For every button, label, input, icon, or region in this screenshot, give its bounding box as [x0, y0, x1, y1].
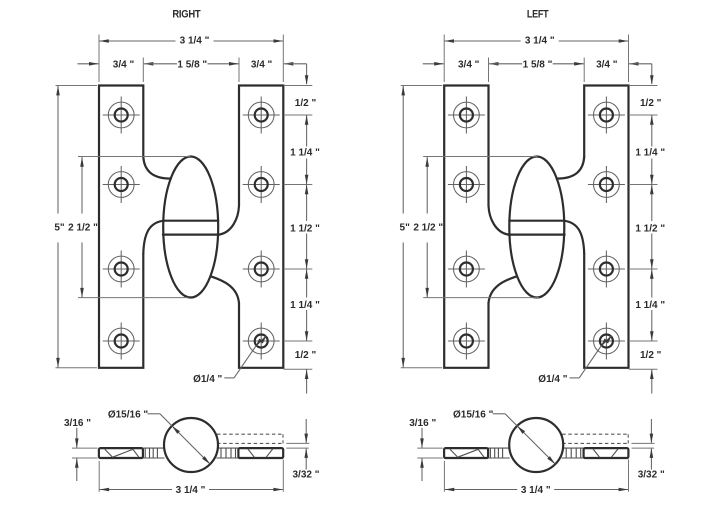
svg-text:3/32 ": 3/32 " [638, 469, 665, 480]
svg-text:1/2 ": 1/2 " [640, 350, 662, 361]
svg-text:1/2 ": 1/2 " [295, 350, 317, 361]
svg-text:1 5/8 ": 1 5/8 " [523, 60, 553, 71]
svg-text:3/4 ": 3/4 " [458, 60, 480, 71]
svg-text:3 1/4 ": 3 1/4 " [180, 36, 210, 47]
svg-text:1 1/4 ": 1 1/4 " [635, 148, 665, 159]
svg-text:1 1/2 ": 1 1/2 " [635, 223, 665, 234]
svg-text:1 1/4 ": 1 1/4 " [635, 300, 665, 311]
svg-text:1 1/4 ": 1 1/4 " [290, 300, 320, 311]
svg-text:3 1/4 ": 3 1/4 " [521, 485, 551, 496]
svg-text:3/32 ": 3/32 " [293, 469, 320, 480]
svg-text:RIGHT: RIGHT [172, 9, 200, 21]
svg-text:3/16 ": 3/16 " [64, 418, 91, 429]
svg-text:3/4 ": 3/4 " [251, 60, 273, 71]
svg-text:1 1/4 ": 1 1/4 " [290, 148, 320, 159]
svg-text:1/2 ": 1/2 " [295, 98, 317, 109]
svg-text:Ø15/16 ": Ø15/16 " [108, 409, 149, 420]
svg-text:5": 5" [400, 222, 411, 233]
svg-text:3 1/4 ": 3 1/4 " [176, 485, 206, 496]
svg-text:Ø1/4 ": Ø1/4 " [193, 374, 222, 385]
svg-text:2 1/2 ": 2 1/2 " [68, 222, 98, 233]
svg-text:Ø15/16 ": Ø15/16 " [453, 409, 494, 420]
svg-text:1 5/8 ": 1 5/8 " [177, 60, 207, 71]
svg-text:3/16 ": 3/16 " [409, 418, 436, 429]
svg-text:5": 5" [54, 222, 65, 233]
svg-text:LEFT: LEFT [527, 9, 549, 21]
svg-text:3/4 ": 3/4 " [113, 60, 135, 71]
svg-text:1 1/2 ": 1 1/2 " [290, 223, 320, 234]
svg-text:2 1/2 ": 2 1/2 " [413, 222, 443, 233]
svg-text:3 1/4 ": 3 1/4 " [525, 36, 555, 47]
svg-text:3/4 ": 3/4 " [596, 60, 618, 71]
svg-text:1/2 ": 1/2 " [640, 98, 662, 109]
svg-text:Ø1/4 ": Ø1/4 " [538, 374, 567, 385]
